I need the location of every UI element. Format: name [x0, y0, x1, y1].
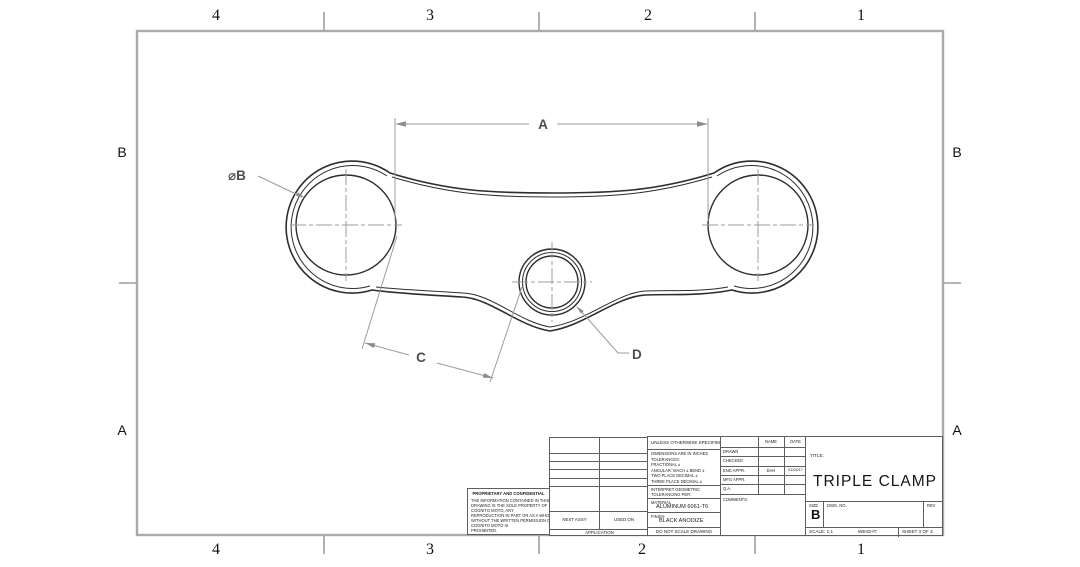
used-on-header: USED ON — [599, 511, 649, 529]
drawing-sheet: 4 3 2 1 4 3 2 1 B A B A — [0, 0, 1080, 567]
tb-line — [648, 485, 720, 486]
tolerance-line: ANGULAR: MACH ± BEND ± — [651, 468, 704, 473]
tb-line — [806, 501, 942, 502]
tolerance-line: THREE PLACE DECIMAL ± — [651, 479, 702, 484]
interpret-line: TOLERANCING PER: — [651, 492, 691, 497]
tb-line — [648, 449, 720, 450]
approval-row-label: ENG APPR. — [723, 466, 745, 475]
centerlines — [290, 169, 814, 322]
spec-column: UNLESS OTHERWISE SPECIFIED: DIMENSIONS A… — [647, 436, 721, 536]
approval-date-value: 01/04/17 — [784, 466, 807, 475]
application-table: NEXT ASSY USED ON APPLICATION — [549, 437, 648, 536]
tolerance-line: DIMENSIONS ARE IN INCHES — [651, 451, 708, 456]
tb-line — [898, 527, 899, 537]
tb-line — [823, 501, 824, 527]
approval-name-value: DAH — [758, 466, 784, 475]
approvals-table: NAME DATE DRAWN CHECKED ENG APPR. DAH 01… — [720, 436, 806, 536]
approval-row-label: Q.A. — [723, 484, 731, 494]
approval-row-label: DRAWN — [723, 447, 738, 456]
leader-b: ⌀B — [228, 168, 305, 198]
approval-row-label: CHECKED — [723, 456, 743, 466]
dim-label-a: A — [538, 117, 548, 132]
size-value: B — [811, 507, 820, 522]
dimension-a: A — [395, 117, 708, 221]
tb-line — [721, 484, 805, 485]
dim-label-c: C — [416, 350, 426, 365]
dwg-no-label: DWG. NO. — [827, 503, 847, 508]
material-value: ALUMINUM 6061-T6 — [656, 504, 708, 511]
weight-label: WEIGHT: — [858, 529, 877, 535]
title-label: TITLE: — [810, 453, 824, 459]
dim-label-b: ⌀B — [228, 168, 246, 183]
dim-label-d: D — [632, 347, 642, 362]
tb-line — [806, 527, 942, 528]
do-not-scale-note: DO NOT SCALE DRAWING — [648, 527, 720, 537]
drawing-title: TRIPLE CLAMP — [806, 473, 944, 491]
approval-row-label: COMMENTS: — [723, 495, 748, 504]
name-header: NAME — [758, 437, 784, 447]
sheet-number: SHEET 3 OF 3 — [902, 529, 933, 535]
spec-header: UNLESS OTHERWISE SPECIFIED: — [651, 440, 724, 446]
tb-line — [648, 498, 720, 499]
leader-d: D — [576, 306, 642, 362]
proprietary-line: PROHIBITED. — [471, 528, 497, 533]
next-assy-header: NEXT ASSY — [550, 511, 599, 529]
tb-line — [648, 512, 720, 513]
proprietary-header: PROPRIETARY AND CONFIDENTIAL — [468, 491, 549, 496]
title-section: TITLE: TRIPLE CLAMP SIZE B DWG. NO. REV … — [805, 436, 943, 536]
tb-line — [923, 501, 924, 527]
proprietary-box: PROPRIETARY AND CONFIDENTIAL THE INFORMA… — [467, 488, 550, 535]
application-header: APPLICATION — [550, 529, 649, 537]
finish-value: BLACK ANODIZE — [659, 518, 703, 525]
rev-label: REV — [927, 503, 935, 508]
scale-value: SCALE: 1:1 — [809, 529, 833, 535]
tolerance-line: TWO PLACE DECIMAL ± — [651, 473, 698, 478]
date-header: DATE — [784, 437, 807, 447]
tolerance-line: FRACTIONAL ± — [651, 462, 680, 467]
tolerance-line: TOLERANCES: — [651, 457, 680, 462]
approval-row-label: MFG APPR. — [723, 475, 745, 484]
